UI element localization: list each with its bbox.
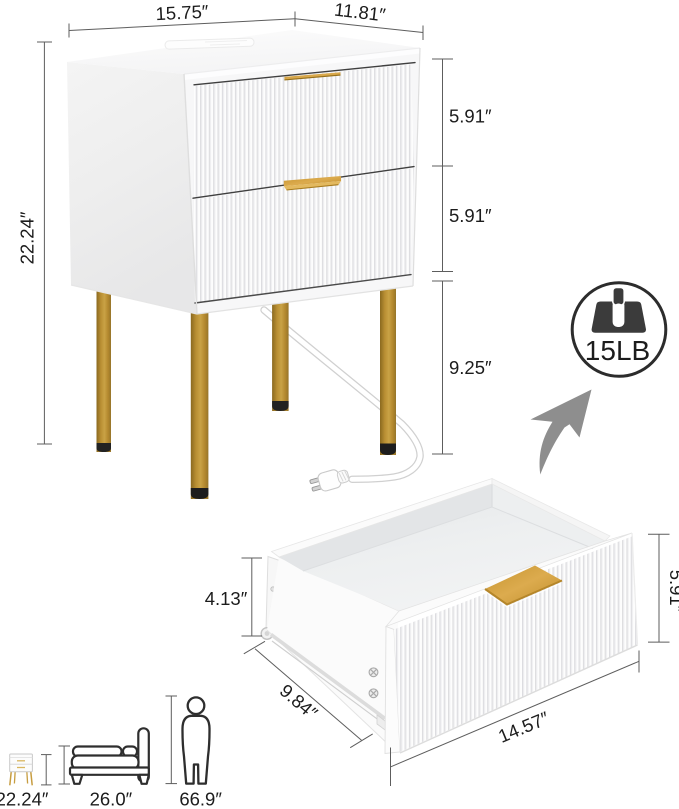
- svg-text:5.91″: 5.91″: [666, 570, 679, 613]
- svg-text:22.24″: 22.24″: [17, 211, 38, 264]
- svg-text:22.24″: 22.24″: [0, 789, 49, 809]
- svg-text:4.13″: 4.13″: [205, 588, 248, 609]
- svg-text:5.91″: 5.91″: [449, 205, 492, 226]
- svg-text:9.25″: 9.25″: [449, 357, 492, 378]
- svg-text:66.9″: 66.9″: [179, 789, 222, 809]
- svg-text:15LB: 15LB: [585, 335, 650, 366]
- svg-text:5.91″: 5.91″: [449, 106, 492, 127]
- svg-text:15.75″: 15.75″: [155, 1, 209, 25]
- svg-text:26.0″: 26.0″: [90, 789, 133, 809]
